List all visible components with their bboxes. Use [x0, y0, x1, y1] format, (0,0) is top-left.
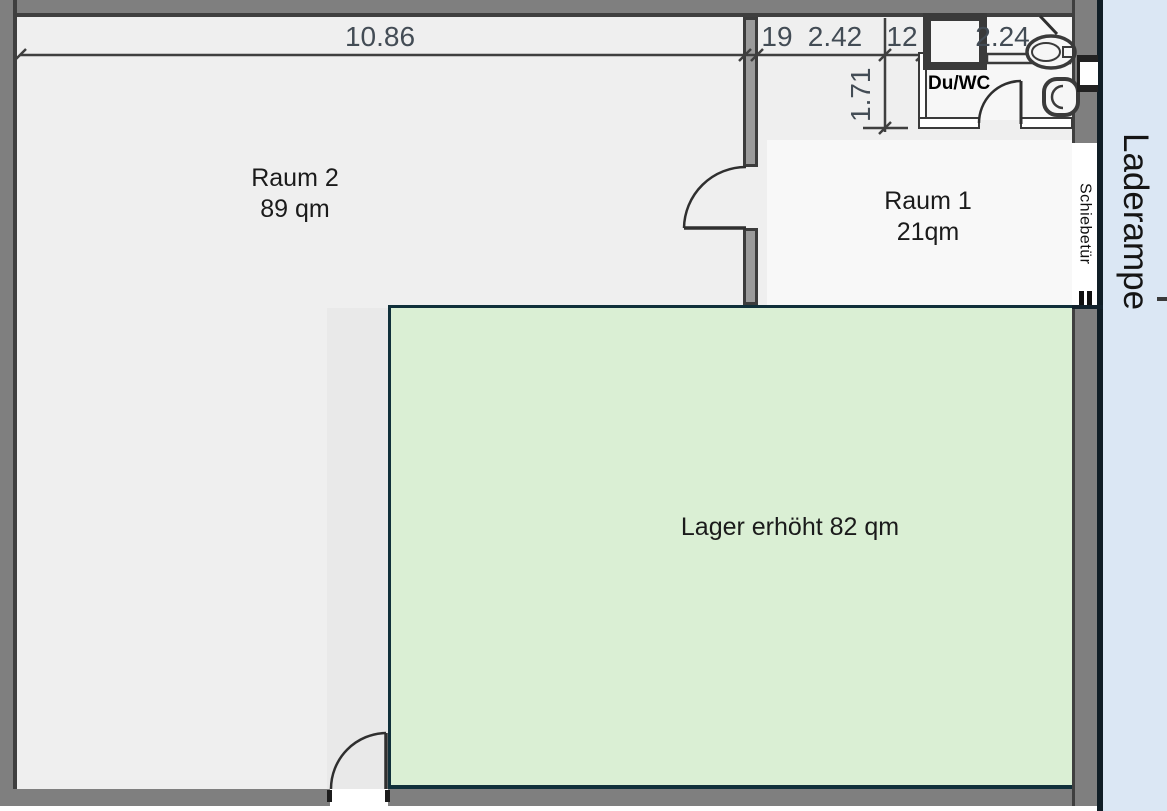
dimension-corridor-width: 2.42	[795, 22, 875, 52]
dimension-total-width: 10.86	[300, 22, 460, 52]
divider-wall-lower	[743, 228, 758, 305]
room-name: Raum 2	[195, 163, 395, 194]
bottom-door-opening	[330, 789, 388, 806]
bathroom-label: Du/WC	[928, 73, 1018, 95]
top-wall	[0, 0, 1097, 17]
room-area: 21qm	[828, 217, 1028, 248]
raum1-label: Raum 1 21qm	[828, 186, 1028, 248]
lager-label: Lager erhöht 82 qm	[640, 512, 940, 543]
floor-plan: Schiebetür	[0, 0, 1167, 811]
passage-strip	[327, 308, 388, 789]
sliding-door-label: Schiebetür	[1076, 183, 1094, 265]
left-wall	[0, 0, 17, 789]
room-area: 89 qm	[195, 194, 395, 225]
dimension-wall-a: 19	[758, 22, 796, 52]
raum2-label: Raum 2 89 qm	[195, 163, 395, 225]
divider-wall-upper	[743, 17, 758, 167]
dimension-bath-width: 2.24	[960, 22, 1045, 52]
loading-ramp-label: Laderampe	[1103, 112, 1167, 332]
lager-area	[388, 305, 1076, 789]
dimension-wall-b: 12	[886, 22, 918, 52]
sliding-door-opening: Schiebetür	[1072, 143, 1097, 305]
right-wall	[1072, 0, 1097, 806]
dimension-corridor-depth: 1.71	[846, 57, 876, 133]
room-name: Raum 1	[828, 186, 1028, 217]
bottom-wall	[0, 789, 1097, 806]
